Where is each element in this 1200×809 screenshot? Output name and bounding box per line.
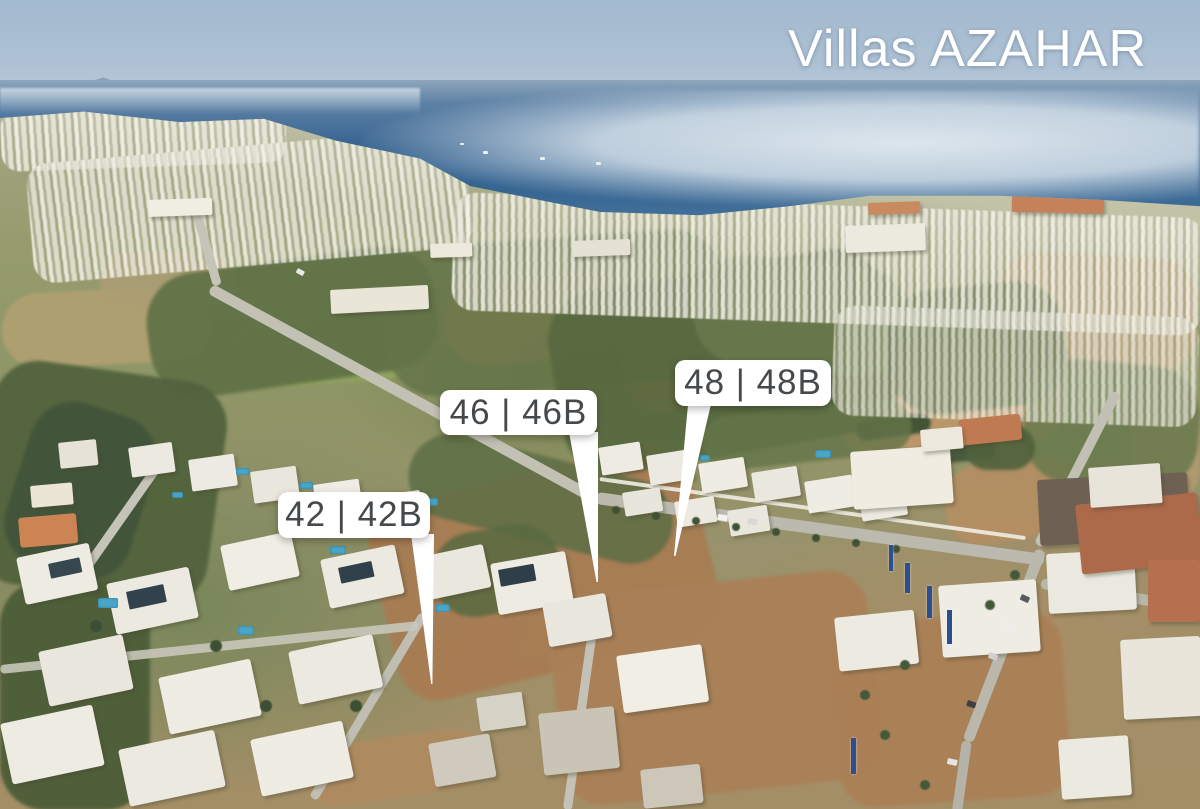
scene-shape: [1148, 560, 1200, 622]
scene-shape: [188, 454, 238, 492]
scene-shape: [905, 563, 910, 593]
scene-shape: [831, 305, 1200, 428]
scene-shape: [1058, 735, 1132, 800]
scene-shape: [238, 626, 254, 635]
scene-shape: [851, 738, 856, 774]
scene-shape: [947, 610, 952, 644]
scene-shape: [860, 690, 870, 700]
brand-title: Villas AZAHAR: [788, 22, 1147, 77]
scene-shape: [927, 586, 932, 618]
scene-shape: [538, 706, 620, 776]
scene-shape: [90, 620, 102, 632]
plot-marker-42: 42 | 42B: [278, 492, 430, 538]
plot-marker-label: 48 | 48B: [684, 363, 822, 403]
scene-shape: [220, 531, 300, 591]
scene-shape: [920, 426, 964, 452]
aerial-photo: Villas AZAHAR 42 | 42B 46 | 46B 48 | 48B: [0, 0, 1200, 809]
scene-shape: [350, 700, 362, 712]
scene-shape: [880, 730, 890, 740]
scene-shape: [58, 439, 99, 469]
scene-shape: [772, 528, 780, 536]
scene-shape: [476, 692, 526, 732]
scene-shape: [698, 457, 748, 494]
scene-shape: [920, 780, 930, 790]
scene-shape: [938, 579, 1041, 658]
scene-shape: [300, 482, 313, 489]
scene-shape: [330, 546, 346, 554]
scene-shape: [612, 506, 620, 514]
scene-shape: [430, 243, 472, 258]
scene-shape: [751, 466, 801, 503]
scene-shape: [850, 445, 954, 510]
scene-shape: [98, 598, 118, 608]
scene-shape: [717, 514, 728, 521]
scene-shape: [210, 640, 222, 652]
scene-shape: [148, 198, 213, 217]
scene-shape: [330, 285, 429, 314]
scene-shape: [572, 239, 631, 257]
plot-marker-48: 48 | 48B: [675, 360, 831, 406]
scene-shape: [1120, 636, 1200, 720]
scene-shape: [30, 482, 74, 508]
scene-shape: [436, 604, 450, 612]
scene-shape: [889, 545, 893, 571]
scene-shape: [812, 534, 820, 542]
scene-shape: [804, 474, 856, 513]
plot-marker-46: 46 | 46B: [440, 390, 597, 435]
scene-shape: [868, 201, 920, 215]
scene-shape: [1088, 463, 1163, 508]
scene-shape: [640, 764, 704, 809]
scene-shape: [1010, 570, 1020, 580]
scene-shape: [18, 513, 78, 548]
scene-shape: [892, 545, 900, 553]
scene-shape: [128, 442, 176, 478]
scene-shape: [985, 600, 995, 610]
scene-shape: [616, 644, 709, 713]
scene-shape: [852, 539, 860, 547]
plot-marker-label: 46 | 46B: [450, 393, 588, 433]
scene-shape: [692, 517, 700, 525]
horizon-haze: [0, 88, 420, 114]
scene-shape: [845, 223, 926, 253]
scene-shape: [652, 512, 660, 520]
scene-shape: [158, 658, 262, 734]
scene-shape: [700, 455, 710, 461]
scene-shape: [900, 660, 910, 670]
scene-shape: [236, 468, 249, 475]
scene-shape: [732, 523, 740, 531]
scene-shape: [260, 700, 272, 712]
scene-shape: [747, 518, 758, 525]
scene-shape: [815, 450, 831, 458]
scene-shape: [428, 733, 497, 787]
plot-marker-label: 42 | 42B: [285, 495, 423, 535]
scene-shape: [172, 492, 183, 498]
